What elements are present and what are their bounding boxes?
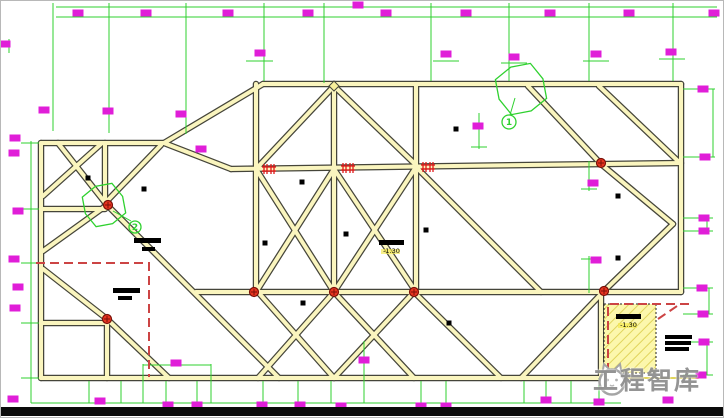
detail-marker-number: 1: [506, 118, 512, 128]
bottom-black-bar: [1, 407, 724, 416]
cad-screenshot-stage: -1.30-1.30 12 工程智库: [0, 0, 724, 418]
detail-marker-number: 2: [132, 223, 138, 233]
watermark-text: 工程智库: [593, 361, 701, 397]
watermark: 工程智库: [593, 361, 701, 397]
beam-plan-drawing: -1.30-1.30 12: [1, 1, 724, 418]
elevation-value: -1.30: [620, 321, 637, 329]
elevation-value: -1.30: [383, 247, 400, 255]
